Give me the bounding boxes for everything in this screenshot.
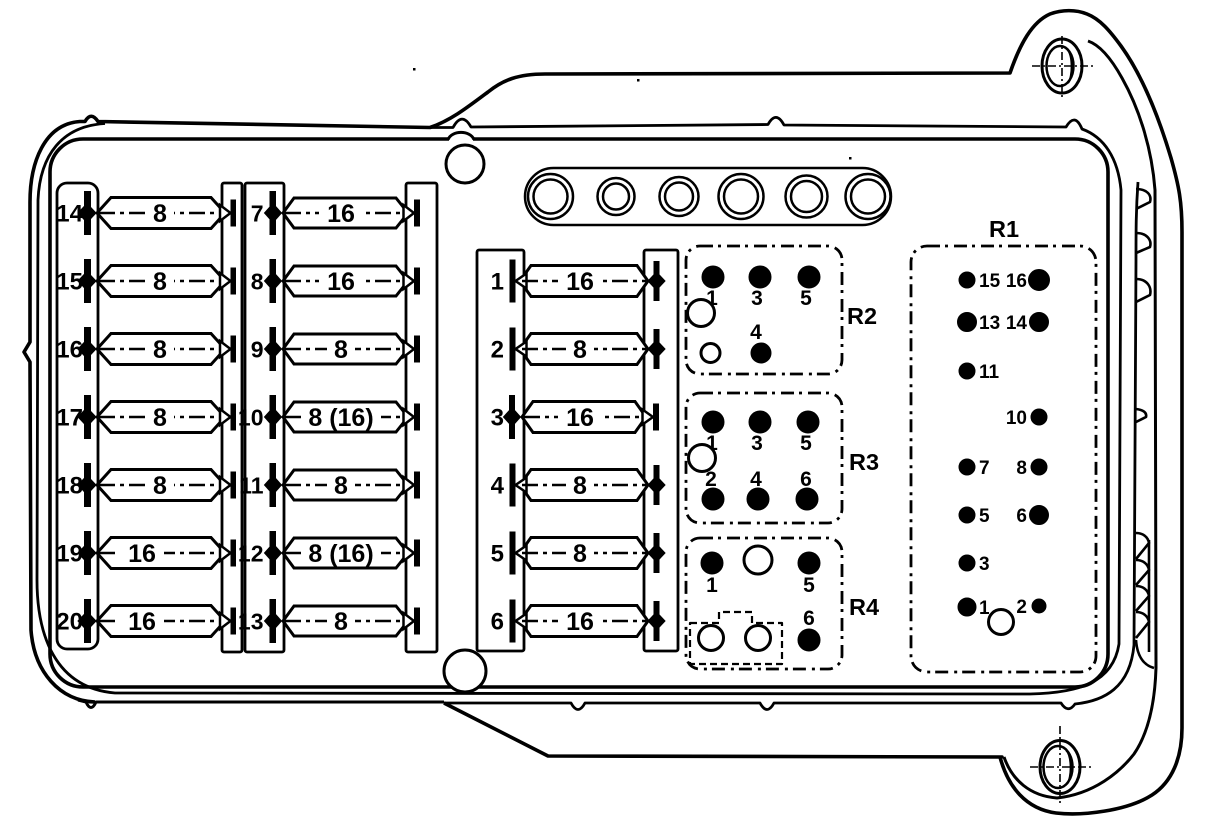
svg-text:12: 12 bbox=[238, 541, 264, 567]
svg-text:8: 8 bbox=[334, 608, 348, 636]
svg-text:8: 8 bbox=[573, 540, 587, 568]
svg-text:1: 1 bbox=[706, 574, 718, 597]
svg-text:8: 8 bbox=[334, 336, 348, 364]
svg-text:16: 16 bbox=[1006, 271, 1027, 292]
svg-text:5: 5 bbox=[979, 506, 990, 527]
svg-text:4: 4 bbox=[750, 321, 762, 344]
svg-text:10: 10 bbox=[238, 405, 264, 431]
svg-text:8: 8 bbox=[573, 336, 587, 364]
svg-text:3: 3 bbox=[979, 554, 990, 575]
svg-text:16: 16 bbox=[566, 608, 594, 636]
svg-text:16: 16 bbox=[128, 608, 156, 636]
svg-text:3: 3 bbox=[751, 287, 763, 310]
svg-text:2: 2 bbox=[705, 468, 717, 491]
svg-text:R2: R2 bbox=[847, 303, 877, 329]
svg-text:2: 2 bbox=[1016, 597, 1027, 618]
svg-text:13: 13 bbox=[979, 313, 1000, 334]
svg-text:16: 16 bbox=[566, 404, 594, 432]
svg-text:6: 6 bbox=[803, 607, 815, 630]
svg-text:16: 16 bbox=[128, 540, 156, 568]
svg-text:13: 13 bbox=[238, 609, 264, 635]
svg-text:3: 3 bbox=[491, 405, 504, 432]
svg-text:4: 4 bbox=[491, 473, 505, 500]
svg-text:3: 3 bbox=[751, 432, 763, 455]
svg-text:11: 11 bbox=[239, 473, 264, 499]
svg-text:R3: R3 bbox=[849, 449, 879, 475]
svg-text:5: 5 bbox=[803, 574, 815, 597]
svg-text:1: 1 bbox=[491, 269, 504, 296]
svg-text:8 (16): 8 (16) bbox=[308, 404, 373, 432]
svg-text:8: 8 bbox=[153, 200, 167, 228]
svg-text:R1: R1 bbox=[989, 216, 1019, 242]
svg-text:5: 5 bbox=[800, 287, 812, 310]
svg-text:9: 9 bbox=[251, 337, 264, 363]
svg-text:7: 7 bbox=[251, 201, 264, 227]
svg-text:6: 6 bbox=[1016, 506, 1027, 527]
svg-text:16: 16 bbox=[327, 268, 355, 296]
svg-text:2: 2 bbox=[491, 337, 504, 364]
svg-text:7: 7 bbox=[979, 458, 990, 479]
svg-text:8: 8 bbox=[153, 472, 167, 500]
svg-text:8: 8 bbox=[153, 404, 167, 432]
svg-text:8: 8 bbox=[573, 472, 587, 500]
svg-text:15: 15 bbox=[979, 271, 1001, 292]
svg-text:8: 8 bbox=[1016, 458, 1027, 479]
svg-text:8: 8 bbox=[153, 336, 167, 364]
svg-text:8 (16): 8 (16) bbox=[308, 540, 373, 568]
svg-text:R4: R4 bbox=[849, 594, 879, 620]
svg-text:5: 5 bbox=[800, 432, 812, 455]
svg-text:4: 4 bbox=[750, 468, 762, 491]
svg-text:16: 16 bbox=[566, 268, 594, 296]
svg-text:8: 8 bbox=[251, 269, 264, 295]
svg-text:6: 6 bbox=[491, 609, 504, 636]
svg-text:10: 10 bbox=[1006, 408, 1027, 429]
svg-text:14: 14 bbox=[1006, 313, 1028, 334]
svg-text:8: 8 bbox=[334, 472, 348, 500]
svg-text:16: 16 bbox=[327, 200, 355, 228]
svg-text:5: 5 bbox=[491, 541, 504, 568]
svg-text:8: 8 bbox=[153, 268, 167, 296]
svg-text:11: 11 bbox=[979, 362, 1000, 383]
svg-text:1: 1 bbox=[979, 598, 990, 619]
